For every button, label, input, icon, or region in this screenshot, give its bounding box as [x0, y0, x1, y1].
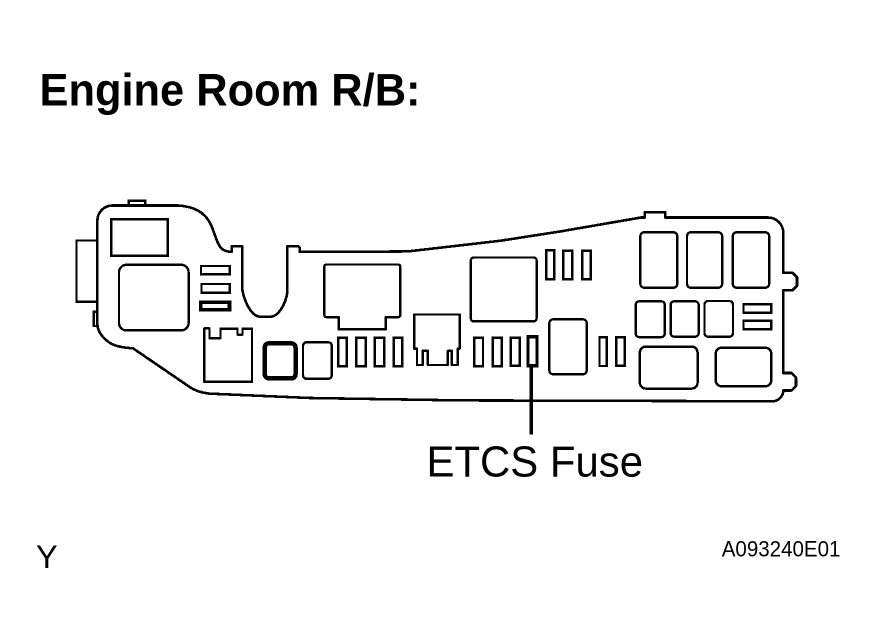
svg-text:Y: Y: [36, 539, 58, 575]
svg-text:Engine Room R/B:: Engine Room R/B:: [40, 65, 421, 116]
svg-text:ETCS Fuse: ETCS Fuse: [427, 437, 644, 486]
svg-text:A093240E01: A093240E01: [722, 537, 841, 562]
